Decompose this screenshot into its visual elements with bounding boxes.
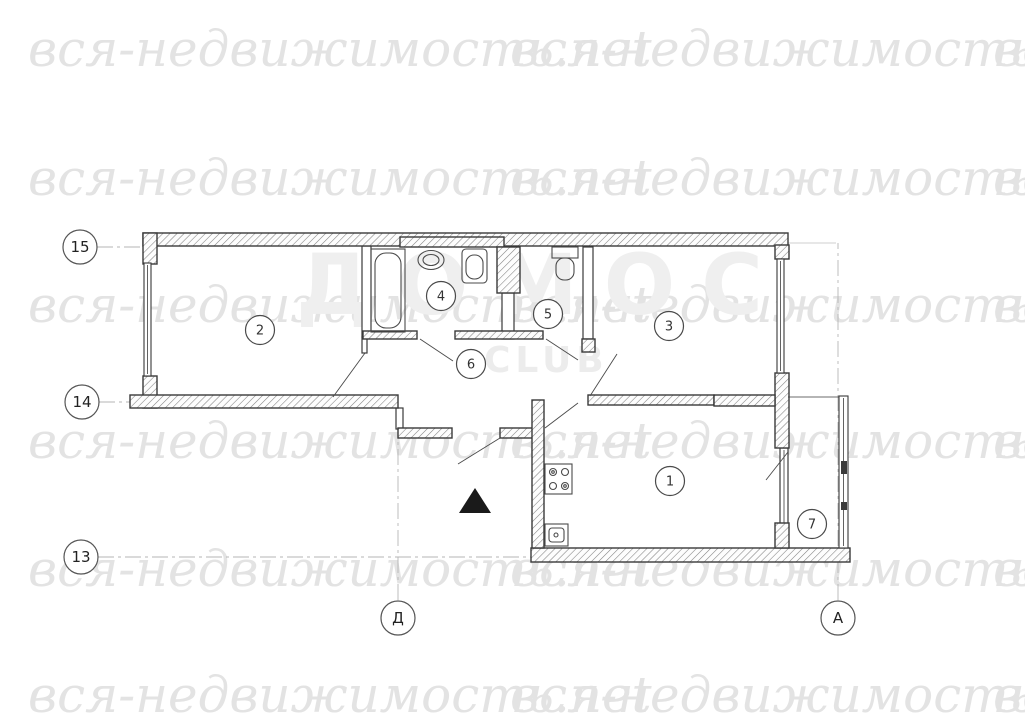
axis-label-13: 13 bbox=[64, 540, 98, 574]
axis-labels-group: 151413ДА bbox=[63, 230, 855, 635]
svg-text:А: А bbox=[833, 609, 844, 627]
room-label-5: 5 bbox=[534, 300, 563, 329]
svg-text:3: 3 bbox=[665, 320, 673, 335]
axis-label-15: 15 bbox=[63, 230, 97, 264]
room-label-4: 4 bbox=[427, 282, 456, 311]
axis-label-А: А bbox=[821, 601, 855, 635]
svg-text:7: 7 bbox=[808, 518, 816, 533]
water-heater-icon bbox=[462, 249, 487, 283]
room-label-2: 2 bbox=[246, 316, 275, 345]
room-label-7: 7 bbox=[798, 510, 827, 539]
axis-lines-group bbox=[97, 243, 838, 600]
svg-text:Д: Д bbox=[392, 609, 404, 627]
svg-text:13: 13 bbox=[71, 548, 90, 566]
axis-label-Д: Д bbox=[381, 601, 415, 635]
bathtub-icon bbox=[371, 249, 405, 332]
room-label-3: 3 bbox=[655, 312, 684, 341]
axis-label-14: 14 bbox=[65, 385, 99, 419]
stove-icon bbox=[545, 464, 572, 494]
room-label-1: 1 bbox=[656, 467, 685, 496]
entrance-arrow-icon bbox=[459, 488, 491, 513]
bath-sink-icon bbox=[418, 251, 444, 270]
toilet-icon bbox=[552, 247, 578, 280]
svg-text:14: 14 bbox=[72, 393, 91, 411]
floor-plan-drawing: 1234567 151413ДА bbox=[0, 0, 1025, 706]
svg-text:4: 4 bbox=[437, 290, 445, 305]
kitchen-sink-icon bbox=[545, 524, 568, 546]
svg-text:5: 5 bbox=[544, 308, 552, 323]
partition-walls-group bbox=[362, 246, 788, 525]
room-label-6: 6 bbox=[457, 350, 486, 379]
svg-text:2: 2 bbox=[256, 324, 264, 339]
svg-text:1: 1 bbox=[666, 475, 674, 490]
floor-plan-page: вся-недвижимость.netвся-недвижимость.net… bbox=[0, 0, 1025, 706]
svg-text:15: 15 bbox=[70, 238, 89, 256]
svg-text:6: 6 bbox=[467, 358, 475, 373]
